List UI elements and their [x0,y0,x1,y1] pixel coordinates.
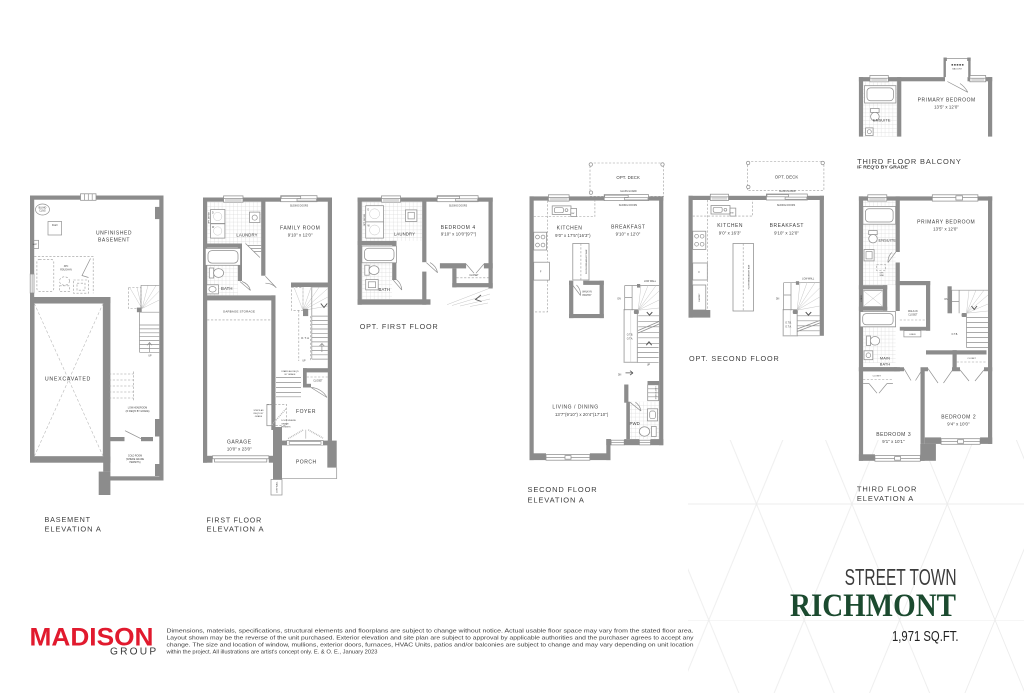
svg-text:BASEMENT: BASEMENT [98,238,130,244]
svg-text:FAMILY ROOM: FAMILY ROOM [280,226,320,232]
svg-text:9'0" x 16'3": 9'0" x 16'3" [719,230,742,235]
svg-text:13'7"(9'10") x 20'4"(17'10"): 13'7"(9'10") x 20'4"(17'10") [555,412,609,417]
svg-text:UP: UP [148,356,152,358]
svg-text:OPT. FIRST FLOOR: OPT. FIRST FLOOR [360,322,439,331]
svg-text:BEDROOM 4: BEDROOM 4 [441,225,476,231]
svg-text:CLOSET: CLOSET [313,380,323,382]
svg-text:(IF REQ'D BY GRADE): (IF REQ'D BY GRADE) [126,410,150,413]
svg-text:LOW HEADROOM: LOW HEADROOM [128,407,147,410]
svg-text:FIRST FLOOR: FIRST FLOOR [207,516,263,525]
svg-text:LAUNDRY: LAUNDRY [236,233,257,238]
svg-text:UNFINISHED: UNFINISHED [96,231,132,237]
svg-text:UP: UP [302,360,306,362]
svg-text:UNEXCAVATED: UNEXCAVATED [45,377,91,383]
svg-text:CLOSET: CLOSET [967,358,976,360]
svg-text:GARBAGE STORAGE: GARBAGE STORAGE [223,310,255,314]
svg-text:SLIDING DOORS: SLIDING DOORS [777,205,796,207]
svg-text:within the project. All illust: within the project. All illustrations ar… [166,649,378,655]
svg-text:IF REQ'D BY GRADE: IF REQ'D BY GRADE [857,165,908,170]
svg-text:9'10" x 12'0": 9'10" x 12'0" [616,232,641,237]
svg-text:PANTRY: PANTRY [698,293,701,302]
svg-text:CLOSET: CLOSET [873,375,882,377]
svg-text:BEDROOM 3: BEDROOM 3 [876,432,911,438]
svg-text:O.T.B.: O.T.B. [627,335,634,337]
svg-text:O.T.A.: O.T.A. [785,326,792,329]
svg-text:FLUSH BREAKFAST BAR: FLUSH BREAKFAST BAR [585,249,588,274]
svg-text:9'1" x 10'1": 9'1" x 10'1" [882,439,905,444]
svg-text:REQ'D BY: REQ'D BY [254,413,264,415]
svg-text:BALCONY: BALCONY [952,68,962,71]
svg-text:LIVING / DINING: LIVING / DINING [552,405,598,411]
svg-text:PORCH: PORCH [296,460,317,466]
svg-text:O.T.B.: O.T.B. [785,323,792,325]
svg-text:13'5" x 12'0": 13'5" x 12'0" [933,226,958,231]
svg-text:FOYER: FOYER [296,409,316,415]
svg-text:GARAGE: GARAGE [227,440,252,446]
svg-text:PERMITS): PERMITS) [130,462,141,464]
svg-text:(WHERE GRADE: (WHERE GRADE [126,458,145,461]
svg-text:LOW WALL: LOW WALL [276,481,279,493]
svg-text:DN: DN [618,298,622,300]
svg-text:SLIDING DOORS: SLIDING DOORS [449,206,468,208]
svg-text:O.T.A.: O.T.A. [627,338,634,341]
svg-text:ENSUITE: ENSUITE [879,238,897,243]
svg-text:SHOE CLOSET: SHOE CLOSET [656,386,658,400]
svg-text:KITCHEN: KITCHEN [557,226,583,232]
svg-text:9'0" x 17'5"(16'3"): 9'0" x 17'5"(16'3") [555,233,591,238]
svg-text:OPT. DRYER: OPT. DRYER [364,213,366,226]
svg-text:OPT. DRYER: OPT. DRYER [209,211,211,224]
svg-text:CLOSET: CLOSET [908,314,918,316]
svg-text:WALK-IN: WALK-IN [908,310,918,313]
svg-text:O.T.B.: O.T.B. [952,334,959,336]
svg-text:SLIDING DOORS: SLIDING DOORS [290,206,309,208]
svg-text:BREAKFAST: BREAKFAST [611,224,645,230]
svg-text:KITCHEN: KITCHEN [717,223,743,229]
svg-text:STEPS AS: STEPS AS [253,409,264,412]
svg-text:PRIMARY BEDROOM: PRIMARY BEDROOM [918,98,976,104]
svg-text:PRIMARY BEDROOM: PRIMARY BEDROOM [917,220,975,226]
svg-text:CLOSET: CLOSET [469,275,479,277]
svg-text:BASEMENT: BASEMENT [45,515,91,524]
svg-text:DOOR WHERE: DOOR WHERE [281,420,296,422]
svg-text:10'0" x 23'0": 10'0" x 23'0" [227,447,252,452]
svg-text:FLUSH BREAKFAST BAR: FLUSH BREAKFAST BAR [748,264,751,289]
svg-text:STAIRS AS REQ'D: STAIRS AS REQ'D [281,370,299,373]
svg-text:RICHMONT: RICHMONT [790,588,956,624]
svg-text:GLASS GUARD: GLASS GUARD [620,190,637,193]
svg-text:OPT. SECOND FLOOR: OPT. SECOND FLOOR [689,354,780,363]
svg-text:9'4" x 10'0": 9'4" x 10'0" [947,422,970,427]
svg-text:GROUP: GROUP [110,647,158,658]
svg-text:LOW WALL: LOW WALL [802,278,815,281]
svg-text:STREET TOWN: STREET TOWN [845,564,957,590]
svg-text:BATH: BATH [221,286,233,291]
svg-text:ELEVATION A: ELEVATION A [857,494,914,503]
svg-text:9'10" x 12'0": 9'10" x 12'0" [774,230,799,235]
svg-text:SECOND FLOOR: SECOND FLOOR [528,485,598,494]
svg-text:LINEN: LINEN [909,334,916,336]
svg-text:THIRD FLOOR: THIRD FLOOR [857,485,917,494]
svg-text:BLKHD: BLKHD [39,208,47,210]
svg-text:PWD: PWD [630,421,640,426]
svg-text:BEDROOM 2: BEDROOM 2 [941,415,976,421]
svg-text:DW: DW [730,213,733,215]
svg-text:3PC: 3PC [64,266,69,268]
svg-text:SINK: SINK [879,275,884,277]
svg-text:WALK-IN: WALK-IN [582,290,592,293]
svg-text:SLIDING DOORS: SLIDING DOORS [619,205,638,207]
svg-text:Dimensions, materials, specifi: Dimensions, materials, specifications, s… [167,628,694,634]
svg-text:OPT. DECK: OPT. DECK [616,175,640,180]
svg-text:OPT. DECK: OPT. DECK [775,174,799,179]
svg-text:13'5" x 12'0": 13'5" x 12'0" [934,105,959,110]
svg-text:BATH: BATH [379,287,391,292]
svg-text:ENSUITE: ENSUITE [873,118,891,123]
svg-text:DN: DN [618,374,622,376]
svg-text:LAUNDRY: LAUNDRY [394,232,415,237]
svg-text:BATH: BATH [880,361,891,366]
svg-text:DN: DN [776,298,780,300]
svg-text:CLNG: CLNG [39,211,46,213]
svg-text:9'10" x 12'0": 9'10" x 12'0" [288,233,313,238]
svg-text:PANTRY: PANTRY [582,294,592,297]
svg-text:PERMITS: PERMITS [281,427,291,429]
svg-text:change. The size and location: change. The size and location of window,… [167,642,694,648]
svg-text:BREAKFAST: BREAKFAST [770,223,804,229]
svg-text:BY GRADE: BY GRADE [285,373,296,376]
svg-text:O.T.A: O.T.A [301,336,309,340]
svg-text:LOW WALL: LOW WALL [644,280,657,283]
svg-text:Layout shown may be the revers: Layout shown may be the reverse of the u… [167,635,694,641]
svg-text:9'10" x 10'0"(9'7"): 9'10" x 10'0"(9'7") [441,232,477,237]
svg-text:MAIN: MAIN [880,355,890,360]
svg-text:DW: DW [571,213,574,215]
svg-text:HWT: HWT [33,244,38,246]
svg-text:COLD ROOM: COLD ROOM [128,456,142,458]
svg-text:GLASS GUARD: GLASS GUARD [779,190,796,193]
svg-text:GRADE: GRADE [255,415,263,418]
svg-text:ROUGH-IN: ROUGH-IN [60,269,72,271]
svg-text:LINEN: LINEN [861,295,863,302]
svg-text:UP: UP [647,364,651,366]
svg-text:1,971 SQ.FT.: 1,971 SQ.FT. [892,629,959,645]
svg-text:GRADE: GRADE [281,423,289,426]
svg-text:ELEVATION A: ELEVATION A [207,524,265,533]
svg-text:ELEVATION A: ELEVATION A [528,496,585,505]
svg-text:ELEVATION A: ELEVATION A [45,524,102,533]
svg-text:FLEX: FLEX [52,225,58,227]
